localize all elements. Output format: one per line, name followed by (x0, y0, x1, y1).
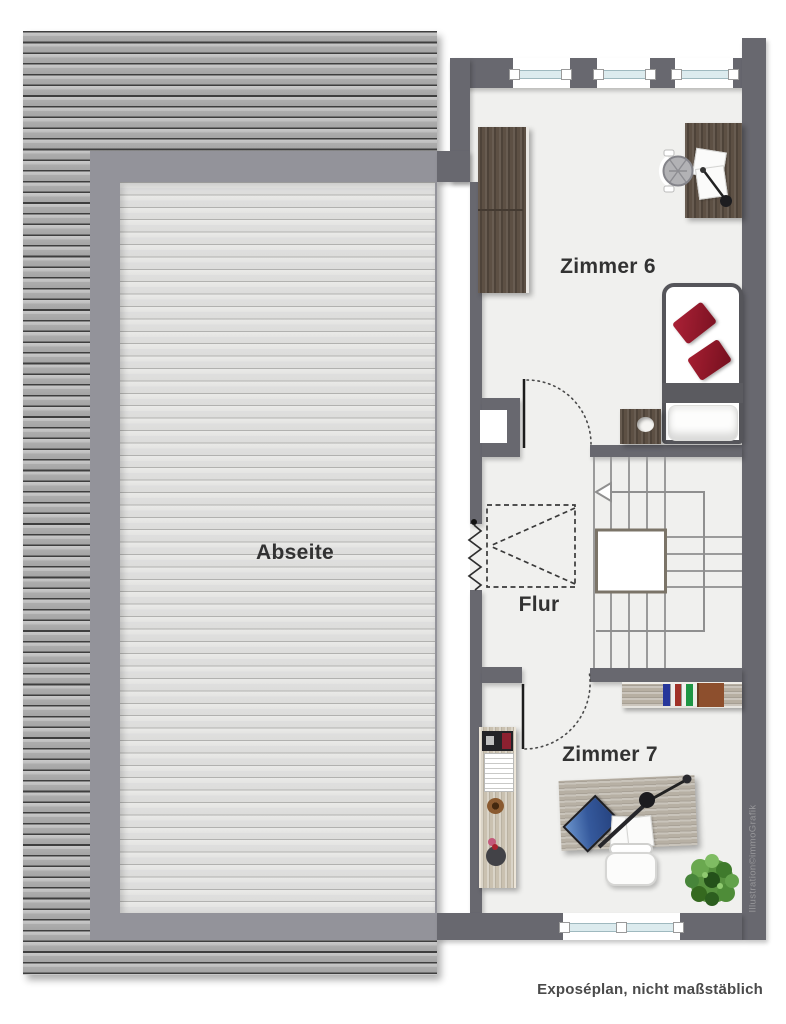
paper-sheet (695, 165, 728, 200)
window-top-3-handle-right (728, 69, 739, 80)
bowl (487, 798, 504, 814)
bed-foot-band (662, 383, 743, 403)
window-bottom-handle-middle (616, 922, 627, 933)
wall-stairs-top (590, 445, 742, 457)
storage-box-brown (697, 683, 724, 707)
window-top-2-handle-right (645, 69, 656, 80)
paper-tray-stack (484, 753, 514, 792)
window-top-3-glass (675, 70, 733, 79)
pot-red-dot (492, 844, 498, 850)
bed-pillow-white (668, 405, 738, 441)
plant-pot-small (486, 846, 506, 866)
illustrator-watermark: Illustration©immoGrafik (748, 799, 759, 919)
wall-jog-zimmer7 (482, 667, 522, 683)
window-top-2-glass (597, 70, 650, 79)
window-top-3-handle-left (671, 69, 682, 80)
binder-green-1 (686, 684, 693, 706)
window-bottom-handle-right (673, 922, 684, 933)
monitor-red-panel (502, 733, 511, 749)
floorplan-canvas: Abseite Zimmer 6 Flur Zimmer 7 Illustrat… (0, 0, 786, 1024)
room-label-flur: Flur (519, 593, 560, 617)
footer-note: Exposéplan, nicht maßstäblich (537, 981, 763, 998)
chimney-opening (480, 410, 507, 443)
wardrobe (478, 127, 529, 293)
window-top-1-handle-left (509, 69, 520, 80)
binder-blue (663, 684, 670, 706)
monitor (482, 731, 513, 751)
wardrobe-divider (478, 209, 523, 211)
window-bottom-handle-left (559, 922, 570, 933)
window-top-2-handle-left (593, 69, 604, 80)
monitor-glyph (486, 736, 494, 745)
chair-zimmer7-seat (605, 852, 657, 886)
cup (637, 417, 654, 432)
window-top-1-handle-right (561, 69, 572, 80)
desk-zimmer7 (559, 775, 698, 851)
room-label-zimmer7: Zimmer 7 (562, 743, 658, 767)
wall-left-foot (437, 151, 470, 182)
room-label-zimmer6: Zimmer 6 (560, 255, 656, 279)
room-label-abseite: Abseite (256, 541, 334, 565)
wall-stairs-bottom (590, 668, 742, 682)
nightstand (620, 409, 661, 444)
